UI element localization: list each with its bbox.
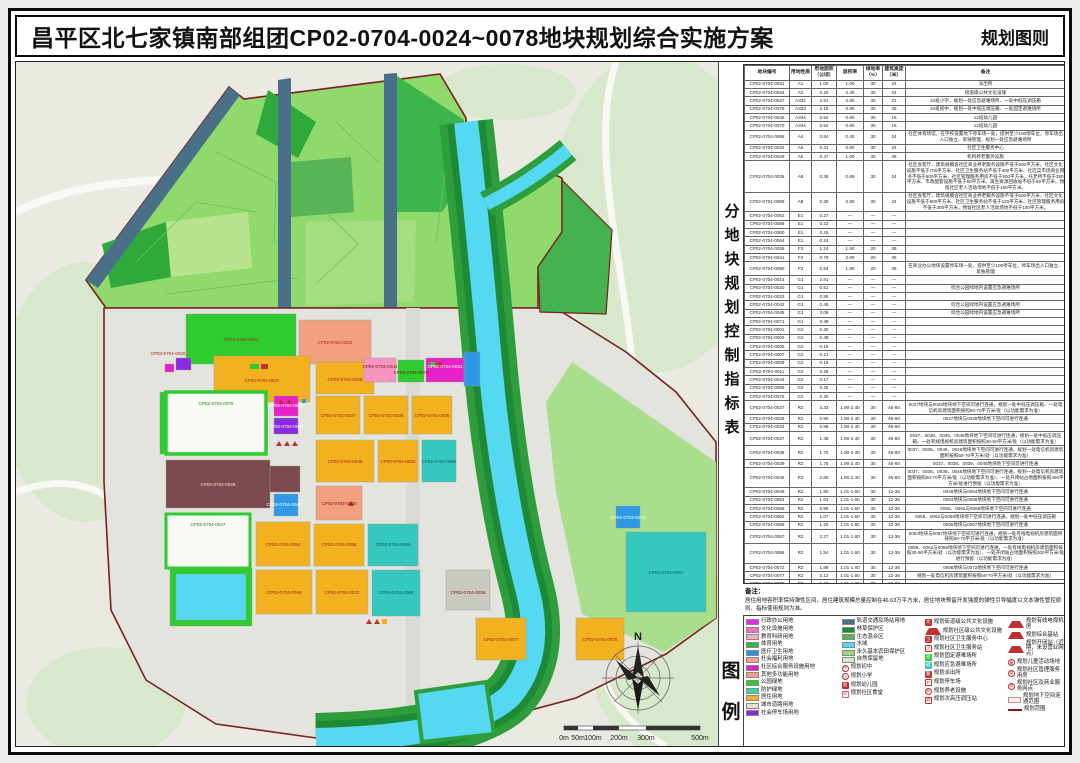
legend-badge-outline-icon: 调 bbox=[925, 697, 932, 704]
legend-item: 文化设施用地 bbox=[746, 627, 840, 633]
legend-item-label: 规划幼儿园 bbox=[851, 683, 878, 689]
legend-column-facilities: 文规划街道级公共文化设施规划社区级公共文化设施卫规划社区卫生服务中心卫规划社区卫… bbox=[925, 619, 1006, 747]
legend-swatch-icon bbox=[842, 650, 855, 656]
legend-badge-icon: 警 bbox=[925, 671, 932, 678]
sheet-content: CP02-0704-0014CP02-0704-0023CP02-0704-00… bbox=[15, 61, 1065, 747]
table-row: CP02-0704-0048G13.06———综合公园绿地内设置应急避难场所 bbox=[745, 309, 1066, 317]
legend-item: 食规划社区食堂 bbox=[842, 691, 923, 698]
legend-item: 社会福利用地 bbox=[746, 657, 840, 663]
table-row: CP02-0704-0007G20.21——— bbox=[745, 351, 1066, 359]
plot-label: CP02-0704-0077 bbox=[484, 637, 519, 642]
legend-tri-icon bbox=[925, 628, 941, 635]
legend-item: 卫规划社区卫生服务站 bbox=[925, 645, 1006, 652]
table-row: CP02-0704-0076A3333.180.80302524班初中，规划一处… bbox=[745, 105, 1066, 113]
table-row: CP02-0704-0026F31.241.502036 bbox=[745, 245, 1066, 253]
legend-item-label: 医疗卫生用地 bbox=[761, 650, 793, 656]
legend-item-label: 规划派出所 bbox=[934, 671, 961, 677]
scale-label: 100m bbox=[584, 735, 602, 742]
plot-label: CP02-0704-0073 bbox=[611, 515, 646, 520]
plot-label: CP02-0704-0041 bbox=[267, 502, 302, 507]
title-bar: 昌平区北七家镇南部组团CP02-0704-0024~0078地块规划综合实施方案… bbox=[15, 15, 1065, 57]
plot-indicator-table: 地块编号用地性质用地面积（公顷）容积率绿地率（%）建筑高度（米）备注CP02-0… bbox=[744, 65, 1065, 584]
legend-item: 卫规划社区卫生服务中心 bbox=[925, 636, 1006, 643]
plot-label: CP02-0704-0028 bbox=[328, 377, 363, 382]
table-row: CP02-0704-0028R20.901.90-2.403045-600027… bbox=[745, 415, 1066, 423]
legend-item: 自然保留地 bbox=[842, 657, 923, 663]
table-row: CP02-0704-0009G20.19——— bbox=[745, 359, 1066, 367]
scale-label: 200m bbox=[610, 735, 628, 742]
legend-item: 管规划社区管理服务用房 bbox=[1008, 668, 1064, 679]
legend-item-label: 规划有线电视机房 bbox=[1026, 619, 1064, 630]
legend-badge-outline-icon: 卫 bbox=[925, 645, 932, 652]
legend-swatch-icon bbox=[842, 619, 855, 625]
legend-tri-icon bbox=[1008, 621, 1024, 628]
legend-item-label: 水域 bbox=[857, 642, 868, 648]
legend-item-label: 规划开闭站（近期，未设营业网点） bbox=[1026, 641, 1064, 658]
legend-badge-icon: 文 bbox=[925, 619, 932, 626]
table-row: CP02-0704-0056E10.22——— bbox=[745, 220, 1066, 228]
sheet-type-label: 规划图则 bbox=[981, 24, 1049, 49]
legend-item-label: 规划范围 bbox=[1024, 707, 1046, 713]
plot-label: CP02-0704-0026 bbox=[201, 482, 236, 487]
legend-item: 其他多功能用地 bbox=[746, 672, 840, 678]
table-row: CP02-0704-0043G20.17——— bbox=[745, 376, 1066, 384]
plot-label: CP02-0704-0038 bbox=[369, 413, 404, 418]
legend-tri-icon bbox=[1008, 646, 1024, 653]
table-row: CP02-0704-0066R21.201.01-1.603012-360066… bbox=[745, 521, 1066, 529]
plot-label: CP02-0704-0020 bbox=[151, 351, 186, 356]
plot-label: CP02-0704-0046 bbox=[328, 459, 363, 464]
legend-circle-icon: 童 bbox=[1008, 659, 1015, 666]
legend-item: 教育科研用地 bbox=[746, 634, 840, 640]
plot-label: CP02-0704-0067 bbox=[649, 570, 684, 575]
table-row: CP02-0704-0039R21.751.90-2.403045-600037… bbox=[745, 460, 1066, 468]
legend-swatch-icon bbox=[746, 657, 759, 663]
plot-label: CP02-0704-0076 bbox=[199, 401, 234, 406]
legend-item: 规划地下空间连通范围 bbox=[1008, 694, 1064, 705]
table-row: CP02-0704-0023G10.89——— bbox=[745, 293, 1066, 301]
legend-item-label: 林草保护区 bbox=[857, 627, 884, 633]
plot-label: CP02-0704-0078 bbox=[583, 637, 618, 642]
table-row: CP02-0704-0041F30.702.002036 bbox=[745, 253, 1066, 261]
legend-item: 公园绿地 bbox=[746, 680, 840, 686]
table-row: CP02-0704-0027R23.331.90-2.403045-600027… bbox=[745, 401, 1066, 415]
legend-swatch-icon bbox=[746, 688, 759, 694]
legend-swatch-icon bbox=[842, 634, 855, 640]
legend-item-label: 规划应急避难场所 bbox=[934, 663, 977, 669]
legend-item-label: 防护绿地 bbox=[761, 688, 783, 694]
plot-label: CP02-0704-0037 bbox=[321, 413, 356, 418]
legend-swatch-icon bbox=[746, 627, 759, 633]
legend-swatch-icon bbox=[746, 680, 759, 686]
legend-swatch-icon bbox=[746, 665, 759, 671]
sheet-frame: 昌平区北七家镇南部组团CP02-0704-0024~0078地块规划综合实施方案… bbox=[8, 8, 1072, 755]
legend-column-zones: 轨道交通及场站用地林草保护区生态混合区水域永久基本农田保护区自然保留地中规划初中… bbox=[842, 619, 923, 747]
table-vertical-title: 分地块规划控制指标表 bbox=[719, 62, 743, 584]
legend-badge-icon: 避 bbox=[925, 662, 932, 669]
legend-swatch-icon bbox=[842, 657, 855, 663]
indicator-table-box: 地块编号用地性质用地面积（公顷）容积率绿地率（%）建筑高度（米）备注CP02-0… bbox=[743, 64, 1065, 584]
legend-item: 小规划小学 bbox=[842, 673, 923, 680]
legend-item-label: 永久基本农田保护区 bbox=[857, 650, 906, 656]
table-row: CP02-0704-0050F30.841.802036在商业办公地块设置停车场… bbox=[745, 262, 1066, 276]
plot-label: CP02-0704-0070 bbox=[394, 370, 429, 375]
legend-item: 医疗卫生用地 bbox=[746, 650, 840, 656]
planning-map: CP02-0704-0014CP02-0704-0023CP02-0704-00… bbox=[16, 62, 718, 746]
legend-swatch-icon bbox=[746, 710, 759, 716]
legend-item: 养规划养老设施 bbox=[925, 688, 1006, 695]
legend-badge-icon: 卫 bbox=[925, 636, 932, 643]
table-row: CP02-0704-0001G20.30——— bbox=[745, 326, 1066, 334]
legend-item: 避规划固定避难场所 bbox=[925, 654, 1006, 661]
legend-circle-icon: 中 bbox=[842, 665, 849, 672]
table-row: CP02-0704-0046R22.601.90-2.403045-600037… bbox=[745, 468, 1066, 488]
legend-badge-outline-icon: 食 bbox=[842, 691, 849, 698]
legend-box: 行政办公用地文化设施用地教育科研用地体育用地医疗卫生用地社会福利用地社区综合服务… bbox=[743, 615, 1065, 747]
table-row: CP02-0704-0047A3322.810.80302124班小学，规划一处… bbox=[745, 97, 1066, 105]
legend-item: 城市道路用地 bbox=[746, 703, 840, 709]
table-row: CP02-0704-0069A80.300.903024社区会客厅，建筑规模含社… bbox=[745, 192, 1066, 212]
legend-item-label: 规划固定避难场所 bbox=[934, 654, 977, 660]
legend-item-label: 规划综合基站 bbox=[1026, 633, 1058, 639]
legend-outline-icon bbox=[1008, 697, 1021, 703]
legend-item-label: 规划社区及商业服务网点 bbox=[1017, 681, 1064, 692]
legend-item-label: 规划社区卫生服务中心 bbox=[934, 637, 988, 643]
legend-item-label: 教育科研用地 bbox=[761, 635, 793, 641]
legend-item-label: 规划社区级公共文化设施 bbox=[943, 629, 1002, 635]
plot-label: CP02-0704-0044 bbox=[363, 364, 398, 369]
table-row: CP02-0704-0037R21.381.90-2.403045-600037… bbox=[745, 431, 1066, 445]
table-row: CP02-0704-0038R21.701.90-2.403045-600037… bbox=[745, 446, 1066, 460]
legend-badge-icon: 幼 bbox=[842, 682, 849, 689]
legend-section: 图 例 行政办公用地文化设施用地教育科研用地体育用地医疗卫生用地社会福利用地社区… bbox=[719, 615, 1065, 747]
plot-label: CP02-0704-0034 bbox=[381, 459, 416, 464]
legend-swatch-icon bbox=[746, 650, 759, 656]
legend-item: 童规划儿童活动场地 bbox=[1008, 659, 1064, 666]
plot-label: CP02-0704-0050 bbox=[322, 501, 357, 506]
table-row: CP02-0704-0071G10.48——— bbox=[745, 317, 1066, 325]
legend-tri-icon bbox=[1008, 632, 1024, 639]
table-row: CP02-0704-0052E10.27——— bbox=[745, 212, 1066, 220]
legend-swatch-icon bbox=[746, 703, 759, 709]
table-row: CP02-0704-0060E10.26——— bbox=[745, 228, 1066, 236]
legend-swatch-icon bbox=[746, 634, 759, 640]
table-row: CP02-0704-0068R21.541.01-1.603012-360058… bbox=[745, 543, 1066, 563]
legend-item-label: 轨道交通及场站用地 bbox=[857, 619, 906, 625]
legend-item-label: 规划地下空间连通范围 bbox=[1023, 694, 1064, 705]
plot-label: CP02-0704-0023 bbox=[318, 340, 353, 345]
legend-item-label: 自然保留地 bbox=[857, 657, 884, 663]
legend-item-label: 城市道路用地 bbox=[761, 703, 793, 709]
legend-item-label: 社会福利用地 bbox=[761, 657, 793, 663]
right-panel: 分地块规划控制指标表 地块编号用地性质用地面积（公顷）容积率绿地率（%）建筑高度… bbox=[718, 62, 1065, 746]
plot-label: CP02-0704-0039 bbox=[415, 413, 450, 418]
table-row: CP02-0704-0054R21.631.01-1.603012-360054… bbox=[745, 496, 1066, 504]
legend-item: 防护绿地 bbox=[746, 688, 840, 694]
legend-item-label: 规划停车场 bbox=[934, 680, 961, 686]
table-row: CP02-0704-0067R22.271.01-1.603012-360054… bbox=[745, 529, 1066, 543]
legend-item: 居住用地 bbox=[746, 695, 840, 701]
legend-item-label: 规划社区卫生服务站 bbox=[934, 646, 983, 652]
legend-item: 规划开闭站（近期，未设营业网点） bbox=[1008, 641, 1064, 658]
legend-circle-icon: 小 bbox=[842, 673, 849, 680]
legend-item-label: 规划养老设施 bbox=[934, 689, 966, 695]
legend-item-label: 规划社区食堂 bbox=[851, 691, 883, 697]
scale-label: 300m bbox=[637, 735, 655, 742]
plot-label: CP02-0704-0066 bbox=[376, 542, 411, 547]
legend-swatch-icon bbox=[842, 627, 855, 633]
north-label: N bbox=[634, 631, 642, 643]
legend-swatch-icon bbox=[746, 619, 759, 625]
table-header-row: 地块编号用地性质用地面积（公顷）容积率绿地率（%）建筑高度（米）备注 bbox=[745, 66, 1066, 81]
table-row: CP02-0704-0077R22.121.01-1.603012-36规划一处… bbox=[745, 572, 1066, 580]
legend-column-infrastructure: 规划有线电视机房规划综合基站规划开闭站（近期，未设营业网点）童规划儿童活动场地管… bbox=[1008, 619, 1064, 747]
legend-item: 永久基本农田保护区 bbox=[842, 650, 923, 656]
table-row: CP02-0704-0029A60.471.003036机构养老服务设施 bbox=[745, 152, 1066, 160]
table-row: CP02-0704-0044A20.200.403024街道级公共文化设施 bbox=[745, 88, 1066, 96]
legend-item: 调规划次高压调压站 bbox=[925, 697, 1006, 704]
page-title: 昌平区北七家镇南部组团CP02-0704-0024~0078地块规划综合实施方案 bbox=[31, 19, 774, 53]
table-row: CP02-0704-0049R21.901.01-1.603012-360049… bbox=[745, 488, 1066, 496]
legend-item: 行政办公用地 bbox=[746, 619, 840, 625]
legend-item: 规划社区级公共文化设施 bbox=[925, 628, 1006, 635]
legend-item-label: 规划儿童活动场地 bbox=[1017, 660, 1060, 666]
table-row: CP02-0704-0058R20.991.01-1.603012-360058… bbox=[745, 504, 1066, 512]
table-row: CP02-0704-0055G20.25——— bbox=[745, 384, 1066, 392]
plot-label: CP02-0704-0062 bbox=[422, 459, 457, 464]
legend-item: 规划有线电视机房 bbox=[1008, 619, 1064, 630]
plot-label: CP02-0704-0035 bbox=[269, 403, 304, 408]
plot-label: CP02-0704-0032 bbox=[269, 424, 304, 429]
table-row: CP02-0704-0078R21.471.01-1.603012-36 bbox=[745, 580, 1066, 584]
legend-circle-icon: 商 bbox=[1008, 683, 1015, 690]
remarks-label: 备注： bbox=[745, 587, 1065, 597]
legend-item-label: 体育用地 bbox=[761, 642, 783, 648]
table-row: CP02-0704-0020G10.51———综合公园绿地内设置应急避难场所 bbox=[745, 284, 1066, 292]
table-row: CP02-0704-0075G20.30——— bbox=[745, 392, 1066, 400]
legend-item: 规划范围 bbox=[1008, 707, 1064, 713]
legend-badge-outline-icon: P bbox=[925, 679, 932, 686]
legend-swatch-icon bbox=[746, 672, 759, 678]
legend-swatch-icon bbox=[746, 642, 759, 648]
plot-label: CP02-0704-0014 bbox=[224, 337, 259, 342]
plot-label: CP02-0704-0036 bbox=[451, 590, 486, 595]
legend-item-label: 规划次高压调压站 bbox=[934, 697, 977, 703]
map-svg: CP02-0704-0014CP02-0704-0023CP02-0704-00… bbox=[16, 62, 718, 746]
legend-line-icon bbox=[1008, 709, 1022, 711]
scale-label: 50m bbox=[571, 735, 585, 742]
legend-item: 水域 bbox=[842, 642, 923, 648]
legend-column-landuse: 行政办公用地文化设施用地教育科研用地体育用地医疗卫生用地社会福利用地社区综合服务… bbox=[746, 619, 840, 747]
table-row: CP02-0704-0072R21.891.01-1.603012-360066… bbox=[745, 563, 1066, 571]
table-row: CP02-0704-0003G20.38——— bbox=[745, 334, 1066, 342]
legend-item-label: 规划街道级公共文化设施 bbox=[934, 620, 993, 626]
plot-label: CP02-0704-0027 bbox=[245, 378, 280, 383]
scale-label: 500m bbox=[691, 735, 709, 742]
table-row: CP02-0704-0064E10.24——— bbox=[745, 237, 1066, 245]
table-row: CP02-0704-0045A3340.520.80301612班幼儿园 bbox=[745, 113, 1066, 121]
plot-label: CP02-0704-0068 bbox=[379, 590, 414, 595]
legend-item-label: 文化设施用地 bbox=[761, 627, 793, 633]
legend-item: 社区综合服务设施用地 bbox=[746, 665, 840, 671]
legend-item: 规划综合基站 bbox=[1008, 632, 1064, 639]
table-row: CP02-0704-0034R20.881.90-2.403045-60 bbox=[745, 423, 1066, 431]
legend-item-label: 规划小学 bbox=[851, 674, 873, 680]
table-row: CP02-0704-0062R21.071.01-1.603012-360058… bbox=[745, 513, 1066, 521]
legend-item-label: 规划社区管理服务用房 bbox=[1017, 668, 1064, 679]
table-row: CP02-0704-0070A3340.520.80301612班幼儿园 bbox=[745, 122, 1066, 130]
legend-swatch-icon bbox=[842, 642, 855, 648]
table-row: CP02-0704-0014G12.81——— bbox=[745, 276, 1066, 284]
legend-item: 轨道交通及场站用地 bbox=[842, 619, 923, 625]
legend-item: 体育用地 bbox=[746, 642, 840, 648]
indicator-table-section: 分地块规划控制指标表 地块编号用地性质用地面积（公顷）容积率绿地率（%）建筑高度… bbox=[719, 62, 1065, 584]
table-row: CP02-0704-0032A50.310.603024社区卫生服务中心 bbox=[745, 144, 1066, 152]
legend-item: 幼规划幼儿园 bbox=[842, 682, 923, 689]
scale-label: 0m bbox=[559, 735, 569, 742]
legend-item: 警规划派出所 bbox=[925, 671, 1006, 678]
legend-item-label: 规划初中 bbox=[851, 665, 873, 671]
table-row: CP02-0704-0065A40.840.403024社区体育场馆，在学校设置… bbox=[745, 130, 1066, 144]
legend-item-label: 社区综合服务设施用地 bbox=[761, 665, 815, 671]
table-row: CP02-0704-0031A11.001.003024派出所 bbox=[745, 80, 1066, 88]
legend-item-label: 其他多功能用地 bbox=[761, 673, 799, 679]
table-row: CP02-0704-0005G20.16——— bbox=[745, 342, 1066, 350]
legend-item: P规划停车场 bbox=[925, 679, 1006, 686]
table-row: CP02-0704-0035A80.380.893024社区会客厅，建筑规模含社… bbox=[745, 161, 1066, 192]
legend-circle-icon: 管 bbox=[1008, 670, 1015, 677]
remarks-note: 备注： 居住用地容积率保持弹性区间，居住建筑规模总量控制在46.63万平方米，居… bbox=[745, 587, 1065, 613]
legend-item-label: 公园绿地 bbox=[761, 680, 783, 686]
legend-swatch-icon bbox=[746, 695, 759, 701]
plot-label: CP02-0704-0049 bbox=[267, 590, 302, 595]
legend-item: 避规划应急避难场所 bbox=[925, 662, 1006, 669]
plot-label: CP02-0704-0031 bbox=[428, 364, 463, 369]
plot-label: CP02-0704-0047 bbox=[191, 522, 226, 527]
legend-item: 中规划初中 bbox=[842, 665, 923, 672]
legend-item-label: 行政办公用地 bbox=[761, 619, 793, 625]
legend-item-label: 社会停车场用地 bbox=[761, 711, 799, 717]
legend-item: 生态混合区 bbox=[842, 634, 923, 640]
plot-label: CP02-0704-0054 bbox=[266, 542, 301, 547]
table-row: CP02-0704-0011G20.26——— bbox=[745, 367, 1066, 375]
plot-label: CP02-0704-0072 bbox=[325, 590, 360, 595]
table-row: CP02-0704-0042G10.49———综合公园绿地内设置应急避难场所 bbox=[745, 301, 1066, 309]
legend-vertical-title: 图 例 bbox=[719, 615, 743, 747]
legend-item-label: 生态混合区 bbox=[857, 635, 884, 641]
legend-item: 商规划社区及商业服务网点 bbox=[1008, 681, 1064, 692]
legend-item: 文规划街道级公共文化设施 bbox=[925, 619, 1006, 626]
legend-item: 林草保护区 bbox=[842, 627, 923, 633]
legend-circle-icon: 养 bbox=[925, 688, 932, 695]
remarks-text: 居住用地容积率保持弹性区间，居住建筑规模总量控制在46.63万平方米，居住地块预… bbox=[745, 598, 1061, 612]
legend-item: 社会停车场用地 bbox=[746, 710, 840, 716]
legend-badge-icon: 避 bbox=[925, 654, 932, 661]
plot-label: CP02-0704-0058 bbox=[322, 542, 357, 547]
legend-item-label: 居住用地 bbox=[761, 695, 783, 701]
